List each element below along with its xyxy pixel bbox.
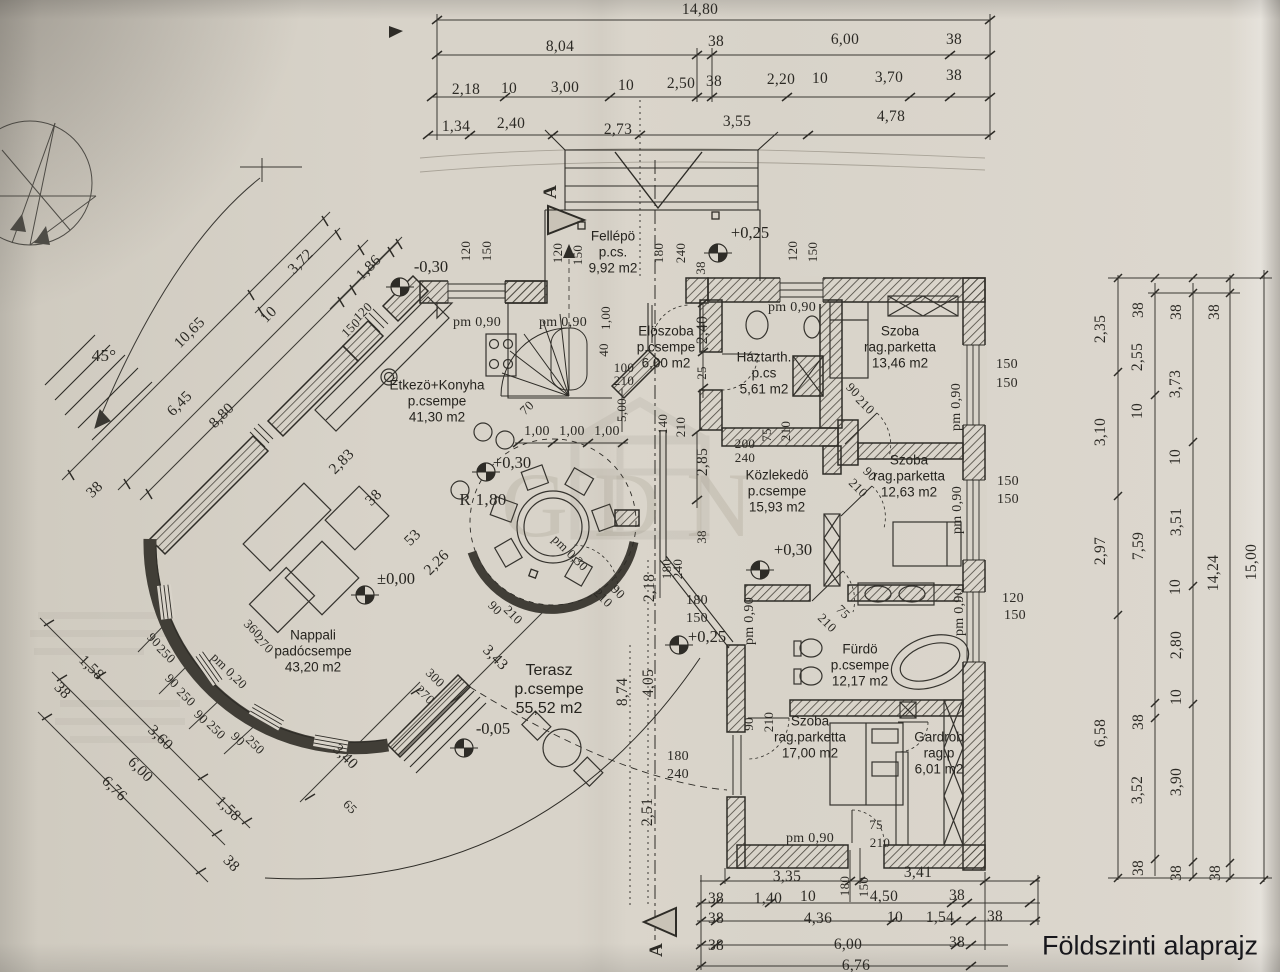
dimension-label: 3,52 (1129, 776, 1147, 804)
dimension-label: 150 (570, 245, 586, 265)
dimension-label: 38 (946, 67, 962, 85)
room-label: Elöszobap.csempe6,00 m2 (637, 324, 696, 373)
page-title: Földszinti alaprajz (1042, 931, 1258, 962)
dimension-label: pm 0,90 (539, 315, 587, 331)
section-marker-a-top: A (540, 185, 562, 199)
dimension-label: 10 (257, 303, 281, 327)
dimension-label: 5,00 (614, 398, 630, 422)
dimension-label: 3,35 (773, 868, 801, 886)
dimension-label: 120 (785, 241, 801, 261)
dimension-label: 38 (50, 679, 74, 703)
dimension-label: 120 (1002, 591, 1024, 607)
dimension-label: 150 (997, 474, 1019, 490)
dimension-label: 10 (1167, 579, 1185, 595)
dimension-label: pm 0,90 (742, 597, 758, 645)
dimension-label: 38 (1130, 302, 1148, 318)
dimension-label: 75 (869, 817, 883, 833)
dimension-label: 38 (949, 934, 965, 952)
dimension-label: 10 (501, 80, 517, 98)
dimension-label: 6,45 (164, 388, 197, 421)
dimension-label: 1,00 (559, 424, 585, 440)
dimension-label: pm 0,90 (453, 315, 501, 331)
dimension-label: pm 0,90 (952, 588, 968, 636)
dimension-label: pm 0,20 (208, 650, 251, 693)
dimension-label: 240 (670, 559, 686, 579)
dimension-label: 2,51 (639, 798, 657, 826)
room-label: Gardrobrag.p6,01 m2 (914, 730, 964, 779)
dimension-label: 2,40 (694, 316, 712, 344)
dimension-label: 1,40 (754, 890, 782, 908)
dimension-label: 240 (673, 243, 689, 263)
dimension-label: 10 (1167, 449, 1185, 465)
dimension-label: 4,05 (640, 669, 658, 697)
dimension-label: pm 0,90 (950, 486, 966, 534)
dimension-label: R 1,80 (459, 490, 506, 510)
dimension-label: 10 (618, 77, 634, 95)
dimension-label: 2,18 (452, 81, 480, 99)
dimension-label: 210 (614, 373, 634, 389)
dimension-label: 70 (517, 398, 538, 419)
dimension-label: 10 (800, 888, 816, 906)
dimension-label: 1,34 (442, 118, 470, 136)
dimension-label: 38 (1168, 865, 1186, 881)
dimension-label: 38 (1130, 714, 1148, 730)
level-marker-label: +0,25 (731, 223, 769, 243)
dimension-label: 6,76 (842, 957, 870, 972)
dimension-label: 2,80 (1168, 631, 1186, 659)
dimension-label: 3,51 (1168, 508, 1186, 536)
room-label: Szobarag.parketta12,63 m2 (873, 453, 945, 502)
dimension-label: 6,76 (98, 773, 131, 806)
dimension-label: 210 (778, 421, 794, 441)
dimension-label: 4,36 (804, 910, 832, 928)
dimension-label: 2,50 (667, 75, 695, 93)
dimension-label: 45° (92, 346, 117, 366)
dimension-label: 6,00 (124, 754, 157, 787)
dimension-label: 1,86 (353, 252, 386, 285)
dimension-label: 8,04 (546, 38, 574, 56)
dimension-label: 38 (1168, 304, 1186, 320)
dimension-label: 6,00 (834, 936, 862, 954)
dimension-label: 6,00 (831, 31, 859, 49)
dimension-label: 40 (596, 343, 612, 357)
dimension-label: 3,60 (144, 722, 177, 755)
dimension-label: 75 (759, 428, 775, 442)
dimension-label: 38 (708, 33, 724, 51)
dimension-label: 210 (870, 835, 890, 851)
dimension-label: 250 (203, 717, 229, 743)
dimension-label: 2,40 (497, 115, 525, 133)
room-label: Étkezö+Konyhap.csempe41,30 m2 (390, 378, 485, 427)
dimension-label: 38 (706, 73, 722, 91)
dimension-label: 1,58 (212, 793, 245, 826)
dimension-label: 10 (887, 909, 903, 927)
dimension-label: 3,43 (479, 642, 512, 675)
room-label: Szobarag.parketta17,00 m2 (774, 714, 846, 763)
dimension-label: 2,20 (767, 71, 795, 89)
dimension-label: 2,73 (604, 121, 632, 139)
room-label: Teraszp.csempe55,52 m2 (514, 661, 583, 719)
dimension-label: 38 (1206, 304, 1224, 320)
dimension-label: 150 (686, 611, 708, 627)
watermark-text: GDN (501, 452, 778, 558)
room-label: Fürdöp.csempe12,17 m2 (831, 642, 890, 691)
dimension-label: 14,24 (1205, 555, 1223, 591)
dimension-label: 38 (949, 887, 965, 905)
dimension-label: 3,70 (875, 69, 903, 87)
section-marker-a-bottom: A (646, 943, 668, 957)
dimension-label: 3,10 (1092, 418, 1110, 446)
dimension-label: 14,80 (682, 1, 718, 19)
dimension-label: 180 (651, 243, 667, 263)
dimension-label: 150 (805, 242, 821, 262)
dimension-label: 2,18 (641, 574, 659, 602)
dimension-label: 1,00 (524, 424, 550, 440)
dimension-label: 65 (340, 797, 361, 818)
dimension-label: 140 (655, 414, 671, 434)
dimension-label: 38 (946, 31, 962, 49)
level-marker-label: +0,30 (774, 540, 812, 560)
dimension-label: 210 (673, 417, 689, 437)
dimension-label: 2,83 (326, 446, 359, 479)
dimension-label: 38 (1130, 860, 1148, 876)
dimension-label: 90 (741, 717, 757, 731)
dimension-label: 10 (1129, 403, 1147, 419)
dimension-label: 150 (996, 376, 1018, 392)
level-marker-label: -0,05 (476, 719, 510, 739)
dimension-label: 150 (997, 492, 1019, 508)
dimension-label: 8,74 (614, 678, 632, 706)
dimension-label: 38 (987, 908, 1003, 926)
room-label: Nappalipadócsempe43,20 m2 (274, 628, 351, 677)
room-label: Szobarag.parketta13,46 m2 (864, 324, 936, 373)
dimension-label: 8,80 (206, 400, 239, 433)
dimension-label: 3,90 (1168, 768, 1186, 796)
dimension-label: 1,00 (598, 306, 614, 330)
dimension-label: 25 (694, 366, 710, 380)
dimension-label: 38 (1207, 865, 1225, 881)
dimension-label: 38 (219, 852, 243, 876)
room-label: Fellépöp.cs.9,92 m2 (589, 229, 638, 278)
dimension-label: 38 (708, 937, 724, 955)
dimension-label: 38 (708, 910, 724, 928)
dimension-label: 38 (693, 261, 709, 275)
dimension-label: 150 (996, 357, 1018, 373)
dimension-label: pm 0,90 (768, 300, 816, 316)
dimension-label: 3,40 (329, 741, 362, 774)
dimension-label: 10 (812, 70, 828, 88)
dimension-label: pm 0,90 (949, 383, 965, 431)
dimension-label: 150 (1004, 608, 1026, 624)
dimension-label: 2,97 (1092, 537, 1110, 565)
floor-plan-page: 14,808,04386,00382,18103,00102,50382,201… (0, 0, 1280, 972)
dimension-label: 4,50 (870, 888, 898, 906)
dimension-label: 38 (708, 890, 724, 908)
dimension-label: 3,41 (904, 864, 932, 882)
dimension-label: 53 (401, 526, 425, 550)
dimension-label: 180 (837, 876, 853, 896)
dimension-label: 10,65 (171, 314, 209, 352)
dimension-label: 4,78 (877, 108, 905, 126)
dimension-label: 75 (833, 602, 854, 623)
dimension-label: 2,35 (1092, 315, 1110, 343)
dimension-label: 1,58 (75, 652, 108, 685)
dimension-label: 250 (173, 684, 199, 710)
dimension-label: pm 0,90 (786, 831, 834, 847)
dimension-label: 3,73 (1167, 370, 1185, 398)
dimension-label: 3,55 (723, 113, 751, 131)
dimension-label: 180 (686, 593, 708, 609)
dimension-label: 1,54 (926, 909, 954, 927)
dimension-label: 7,59 (1130, 532, 1148, 560)
level-marker-label: -0,30 (414, 257, 448, 277)
dimension-label: 1,00 (594, 424, 620, 440)
dimension-label: 38 (362, 486, 386, 510)
room-label: Háztarth.p.cs5,61 m2 (737, 350, 792, 399)
level-marker-label: +0,25 (688, 627, 726, 647)
dimension-label: 2,55 (1129, 343, 1147, 371)
dimension-label: 2,26 (421, 547, 454, 580)
dimension-label: 180 (667, 749, 689, 765)
dimension-label: 3,72 (285, 246, 318, 279)
dimension-label: 10 (1168, 689, 1186, 705)
dimension-label: 120 (550, 243, 566, 263)
dimension-label: 3,00 (551, 79, 579, 97)
dimension-label: 6,58 (1092, 719, 1110, 747)
dimension-label: 38 (83, 478, 107, 502)
dimension-label: 120 (458, 241, 474, 261)
level-marker-label: ±0,00 (377, 569, 415, 589)
dimension-label: 150 (479, 241, 495, 261)
dimension-label: 15,00 (1243, 544, 1261, 580)
dimension-label: 240 (667, 767, 689, 783)
